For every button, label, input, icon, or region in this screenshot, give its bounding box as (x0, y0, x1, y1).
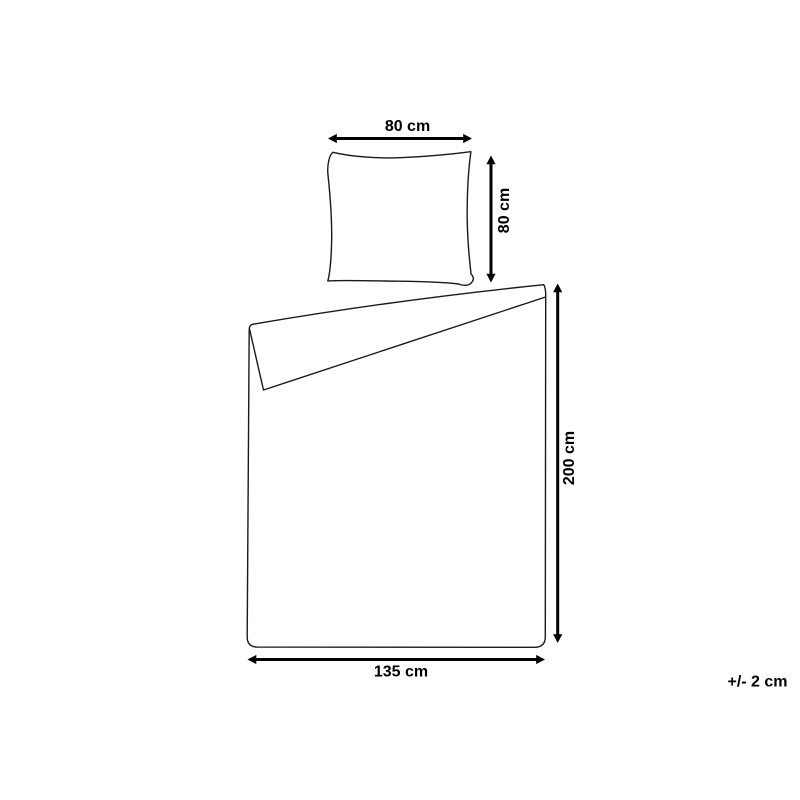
svg-text:135 cm: 135 cm (374, 664, 428, 681)
svg-text:+/- 2 cm: +/- 2 cm (727, 674, 787, 691)
svg-text:80 cm: 80 cm (496, 188, 513, 233)
svg-text:80 cm: 80 cm (385, 118, 430, 135)
svg-text:200 cm: 200 cm (561, 431, 578, 485)
